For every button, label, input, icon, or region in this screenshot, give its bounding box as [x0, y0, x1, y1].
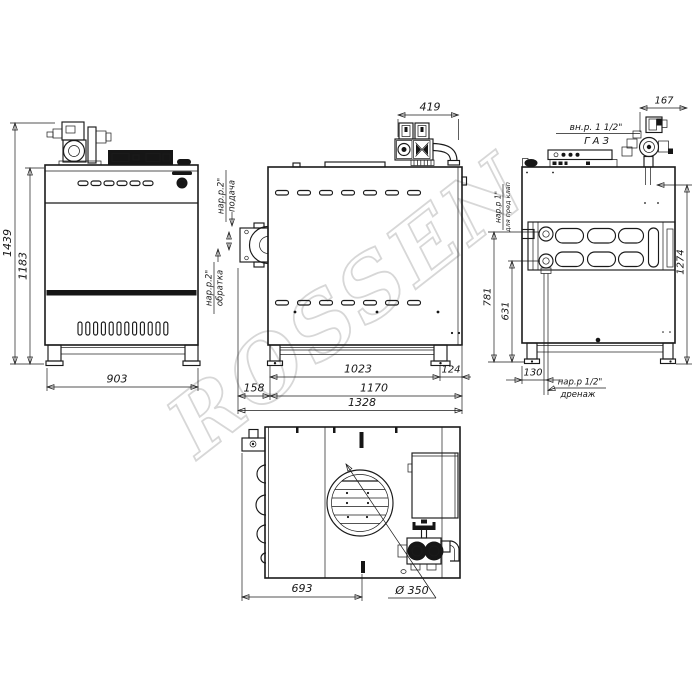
dim-gas-offset: 167 — [640, 96, 687, 133]
label-gas-word: ГАЗ — [584, 136, 612, 147]
rear-slotted-panel — [522, 222, 675, 395]
top-view: 693 Ø 350 — [242, 427, 460, 601]
dim-valve-width: 419 — [398, 101, 459, 141]
brand-logo-badge: S — [172, 172, 192, 189]
rear-body — [522, 167, 675, 343]
label-return-size: нар.р.2" — [205, 270, 215, 306]
rear-top-panel — [523, 150, 618, 167]
dim-left-offset-label: 158 — [244, 382, 265, 395]
label-drain-word: дренаж — [560, 390, 596, 400]
front-lower-louvers — [78, 322, 168, 335]
flue-opening — [327, 470, 393, 536]
dim-total-length-label: 1328 — [348, 396, 376, 409]
label-gas: вн.р. 1 1/2" ГАЗ — [556, 123, 640, 147]
label-supply-size: нар.р.2" — [217, 178, 227, 214]
label-safety-word: для пред клап — [504, 182, 512, 233]
dim-lower-port-label: 631 — [501, 301, 512, 320]
rear-gas-valve — [622, 117, 673, 185]
front-upper-louvers — [78, 181, 153, 186]
label-drain: нар.р 1/2" дренаж — [548, 378, 606, 401]
label-return-word: обратка — [216, 270, 226, 306]
dim-rear-height-label: 1274 — [676, 249, 687, 274]
boiler-technical-drawing: ROSSEN — [0, 0, 700, 700]
top-valve-assembly — [398, 520, 459, 574]
drawing-canvas: ROSSEN — [0, 0, 700, 700]
dim-valve-width-label: 419 — [420, 101, 441, 114]
label-supply-word: подача — [228, 180, 238, 212]
front-body: S — [45, 165, 198, 345]
label-drain-size: нар.р 1/2" — [558, 378, 603, 388]
top-control-box — [408, 453, 458, 518]
front-legs — [46, 345, 200, 366]
dim-drain-offset: 130 — [506, 366, 562, 384]
supply-return-flange — [240, 223, 268, 267]
logo-letter: S — [180, 181, 183, 187]
dim-body-height-label: 1183 — [17, 252, 30, 280]
rear-legs — [525, 343, 676, 364]
rear-view: 167 вн.р. 1 1/2" ГАЗ 1274 нар.р 1" для п… — [483, 96, 693, 401]
label-supply: нар.р.2" подача — [217, 170, 238, 239]
dim-total-height: 1439 — [1, 123, 55, 364]
dim-feet-outer-label: 1170 — [360, 382, 388, 395]
dim-total-height-label: 1439 — [1, 229, 14, 257]
dim-safety-height-label: 781 — [483, 287, 494, 306]
dim-feet-span-label: 1023 — [344, 363, 372, 376]
dim-flue-diameter-label: Ø 350 — [394, 584, 428, 597]
dim-right-offset-label: 124 — [441, 365, 460, 376]
side-louvers-row1 — [276, 191, 421, 196]
dim-lower-port-height: 631 — [488, 261, 540, 362]
front-burner-assembly — [47, 122, 111, 165]
dim-flue-offset-label: 693 — [292, 582, 313, 595]
dim-drain-offset-label: 130 — [523, 368, 542, 379]
label-safety-size: нар.р 1" — [494, 191, 503, 223]
front-control-panel — [108, 150, 191, 165]
top-left-bracket — [242, 430, 266, 564]
label-gas-size: вн.р. 1 1/2" — [570, 123, 623, 133]
dim-front-width-label: 903 — [107, 373, 128, 386]
side-gas-valve — [395, 123, 460, 166]
dim-body-height: 1183 — [17, 168, 45, 364]
dim-gas-offset-label: 167 — [654, 96, 674, 107]
label-return: нар.р.2" обратка — [205, 243, 230, 314]
front-view: S — [1, 122, 200, 391]
